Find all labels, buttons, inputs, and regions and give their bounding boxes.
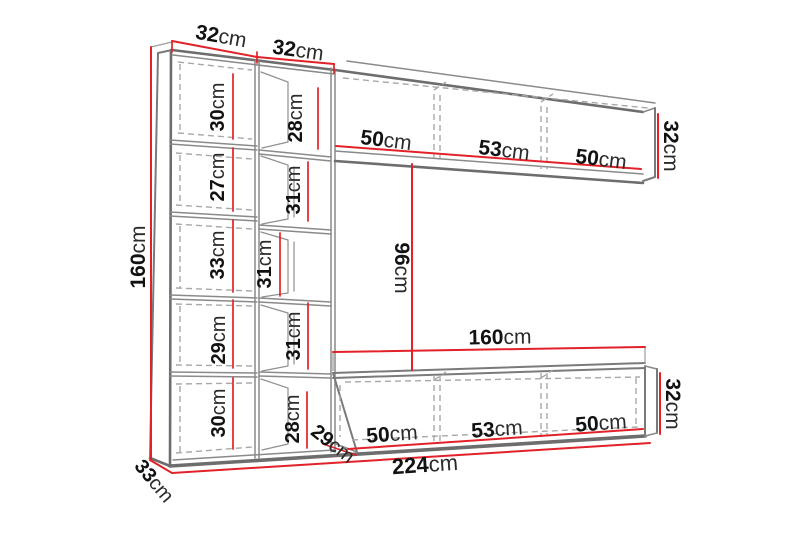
dim-label-left-col-4: 29cm: [208, 316, 230, 365]
dim-label-bench-sec-2: 53cm: [471, 416, 524, 443]
dim-label-bench-sec-1: 50cm: [366, 421, 419, 448]
dim-label-bench-sec-3: 50cm: [575, 410, 628, 437]
dim-label-mid-col-4: 31cm: [283, 312, 305, 361]
diagram-canvas: 32cm 32cm 160cm 30cm 27cm 33cm 29cm 30cm…: [0, 0, 800, 533]
dim-label-mid-col-1: 28cm: [285, 94, 307, 143]
dim-label-left-col-5: 30cm: [208, 389, 230, 438]
dim-label-left-col-2: 27cm: [207, 153, 229, 202]
dim-label-mid-col-3: 31cm: [254, 240, 276, 289]
dim-label-mid-col-5: 28cm: [282, 395, 304, 444]
dim-label-left-col-1: 30cm: [207, 83, 229, 132]
dim-label-left-col-3: 33cm: [207, 231, 229, 280]
dim-label-bench-height: 32cm: [661, 378, 684, 429]
dim-label-mid-col-2: 31cm: [283, 166, 305, 215]
dim-label-lower-width: 160cm: [468, 325, 531, 349]
furniture-dimension-diagram: 32cm 32cm 160cm 30cm 27cm 33cm 29cm 30cm…: [0, 0, 800, 533]
dim-label-shelf-height: 32cm: [659, 120, 682, 171]
dim-label-total-height: 160cm: [127, 225, 150, 288]
dim-label-gap-height: 96cm: [390, 242, 413, 293]
dim-label-total-width: 224cm: [391, 450, 459, 480]
